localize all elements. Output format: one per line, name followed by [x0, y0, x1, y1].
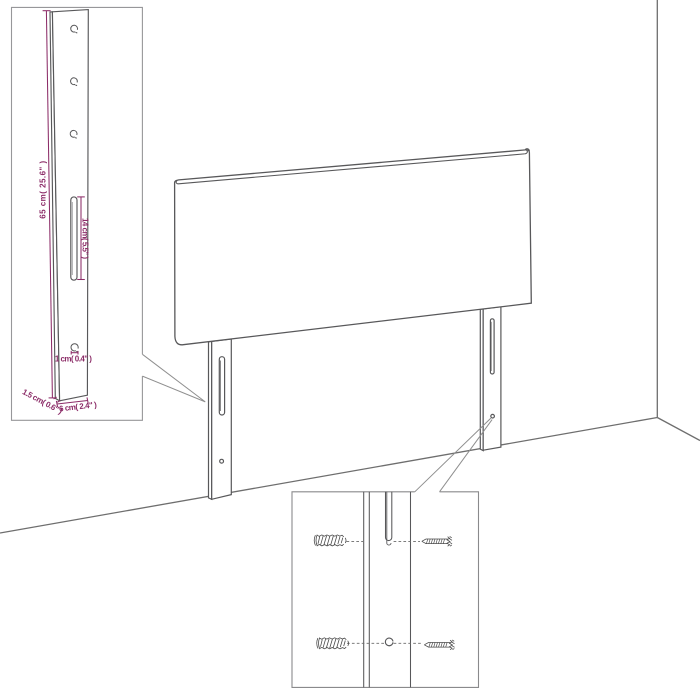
svg-text:14 cm( 5.5" ): 14 cm( 5.5" )	[80, 218, 89, 259]
svg-text:65 cm( 25.6" ): 65 cm( 25.6" )	[38, 160, 47, 218]
svg-text:1 cm( 0.4" ): 1 cm( 0.4" )	[55, 354, 92, 363]
svg-text:6 cm( 2.4" ): 6 cm( 2.4" )	[59, 400, 98, 413]
